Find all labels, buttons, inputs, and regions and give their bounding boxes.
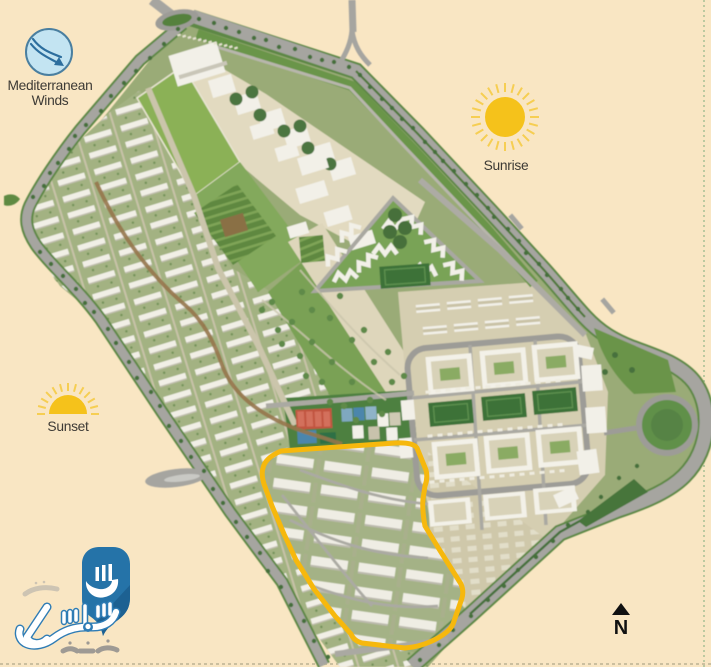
svg-text:Sunset: Sunset [47,419,89,434]
svg-text:N: N [614,617,628,639]
svg-text:Winds: Winds [32,93,69,108]
svg-text:Sunrise: Sunrise [484,158,529,173]
svg-text:Mediterranean: Mediterranean [7,78,92,93]
